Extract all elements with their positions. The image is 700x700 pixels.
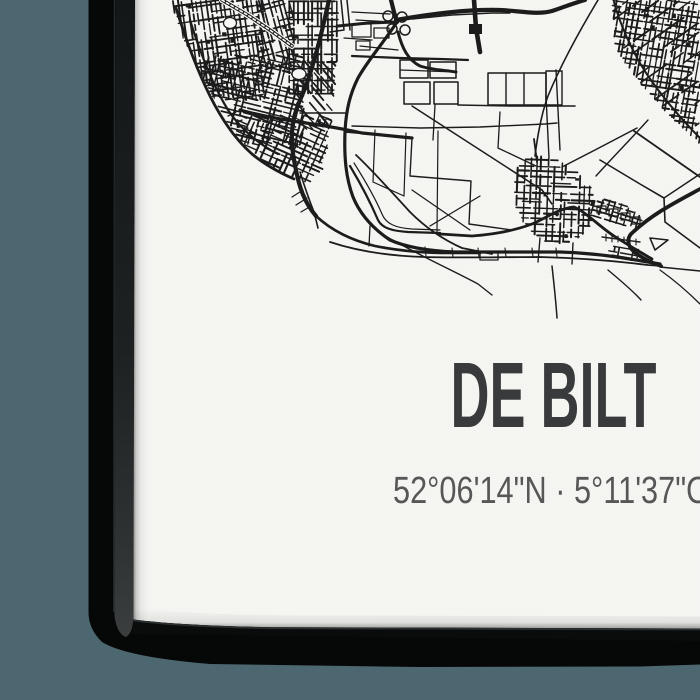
svg-text:52°06'14"N · 5°11'37"O: 52°06'14"N · 5°11'37"O	[393, 470, 700, 512]
svg-text:DE BILT: DE BILT	[451, 343, 657, 447]
